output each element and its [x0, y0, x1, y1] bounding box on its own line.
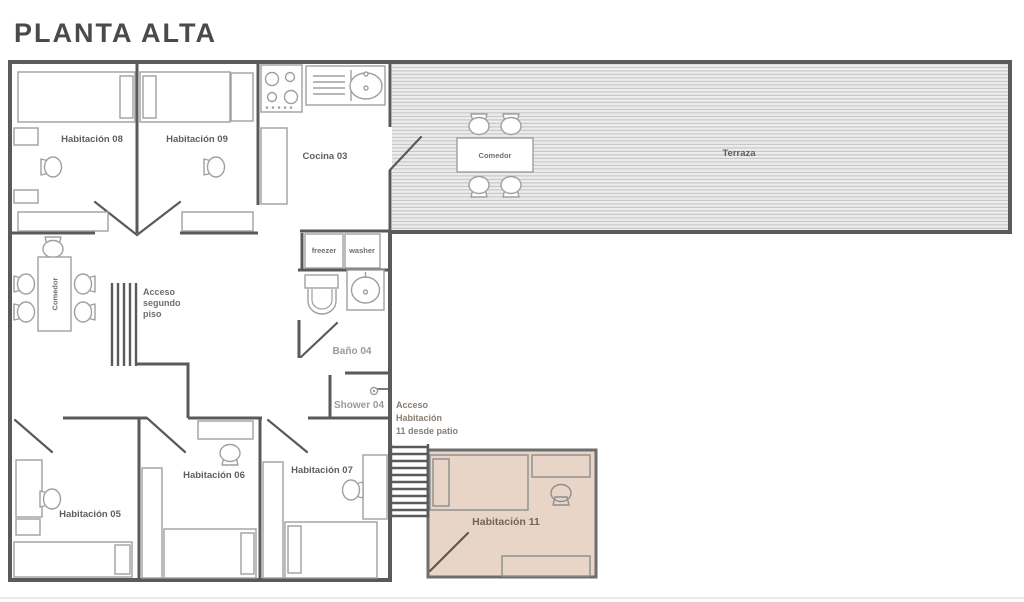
bano-04-label: Baño 04 [333, 346, 372, 357]
desk-icon [363, 455, 387, 519]
chair-icon [501, 114, 521, 135]
wardrobe-icon [142, 468, 162, 578]
pillow-icon [241, 533, 254, 574]
comedor-interior-label: Comedor [51, 277, 60, 310]
closet-icon [182, 212, 253, 231]
terraza-label: Terraza [722, 148, 756, 159]
chair-icon [41, 157, 62, 177]
wardrobe-icon [16, 460, 42, 517]
comedor-interior-furniture: Comedor [14, 237, 95, 331]
habitacion-09-furniture [140, 72, 253, 231]
ladder-icon [391, 444, 428, 518]
comedor-terraza-label: Comedor [479, 151, 512, 160]
chair-icon [14, 274, 35, 294]
acceso-hab11-line3: 11 desde patio [396, 426, 459, 436]
counter-icon [261, 128, 287, 204]
habitacion-06-furniture [142, 421, 256, 578]
chair-icon [75, 274, 96, 294]
acceso-segundo-line1: Acceso [143, 287, 176, 297]
habitacion-07-label: Habitación 07 [291, 465, 353, 476]
door-hab06 [147, 418, 185, 452]
acceso-segundo-piso-note: Acceso segundo piso [143, 287, 181, 319]
shower-head-dot [373, 390, 375, 392]
habitacion-11-room [428, 450, 596, 577]
habitacion-11-label: Habitación 11 [472, 516, 540, 528]
pillow-icon [115, 545, 130, 574]
cocina-03-fixtures [261, 65, 385, 204]
cocina-03-label: Cocina 03 [303, 151, 348, 162]
habitacion-09-label: Habitación 09 [166, 134, 228, 145]
door-hab09 [137, 202, 180, 235]
burner-icon [268, 93, 277, 102]
chair-icon [75, 302, 96, 322]
burner-icon [266, 73, 279, 86]
door-hab07 [268, 420, 307, 452]
shelf-icon [14, 128, 38, 145]
pillow-icon [143, 76, 156, 118]
bed-icon [18, 72, 135, 122]
burner-icon [285, 91, 298, 104]
chair-icon [43, 237, 63, 258]
chair-icon [469, 114, 489, 135]
habitacion-08-furniture [14, 72, 135, 231]
bath-sink-drain [364, 290, 368, 294]
floor-plan-page: PLANTA ALTA [0, 0, 1024, 602]
wardrobe-icon [231, 73, 253, 121]
floor-plan-canvas: PLANTA ALTA [0, 0, 1024, 602]
chair-icon [204, 157, 225, 177]
shelf-icon [16, 519, 40, 535]
wall-stair-nook [137, 364, 188, 418]
chair-icon [14, 302, 35, 322]
habitacion-05-label: Habitación 05 [59, 509, 121, 520]
desk-icon [198, 421, 253, 439]
acceso-habitacion-11-note: Acceso Habitación 11 desde patio [396, 400, 459, 436]
pillow-icon [288, 526, 301, 573]
habitacion-08-label: Habitación 08 [61, 134, 123, 145]
wardrobe-icon [263, 462, 283, 578]
acceso-segundo-line3: piso [143, 309, 162, 319]
bano-04-fixtures [305, 270, 388, 395]
washer-label: washer [348, 246, 375, 255]
closet-icon [18, 212, 108, 231]
chair-icon [40, 489, 61, 509]
acceso-hab11-line1: Acceso [396, 400, 429, 410]
chair-icon [220, 445, 240, 466]
acceso-hab11-line2: Habitación [396, 413, 442, 423]
burner-icon [286, 73, 295, 82]
shower-04-label: Shower 04 [334, 400, 384, 411]
freezer-label: freezer [312, 246, 337, 255]
toilet-tank-icon [305, 275, 338, 288]
chair-icon [343, 480, 364, 500]
laundry-area: freezer washer [305, 234, 380, 268]
page-title: PLANTA ALTA [14, 18, 217, 48]
acceso-segundo-line2: segundo [143, 298, 181, 308]
shelf-icon [14, 190, 38, 203]
door-hab05 [15, 420, 52, 452]
stove-icon [261, 65, 302, 112]
drain-icon [364, 86, 368, 90]
chair-icon [469, 177, 489, 198]
pillow-icon [120, 76, 133, 118]
chair-icon [501, 177, 521, 198]
stairs-icon [112, 283, 136, 366]
faucet-icon [364, 72, 368, 76]
habitacion-06-label: Habitación 06 [183, 470, 245, 481]
